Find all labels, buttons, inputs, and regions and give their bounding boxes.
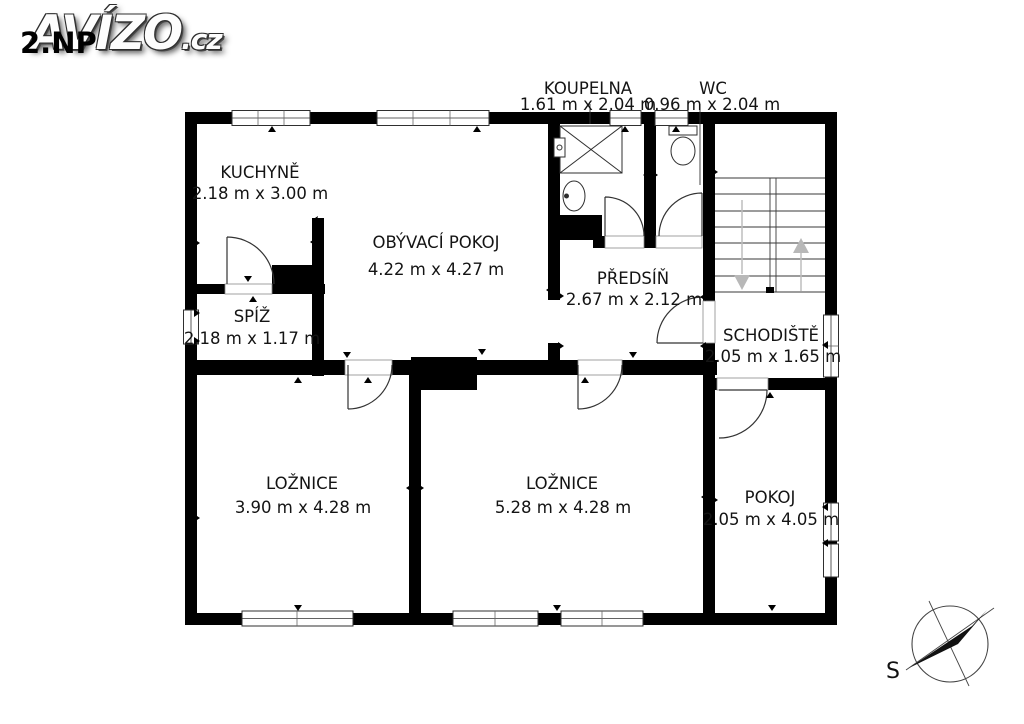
room-label-pokoj: POKOJ 2.05 m x 4.05 m bbox=[703, 488, 839, 529]
bedroom2-window-right bbox=[561, 611, 643, 626]
room-label-predsin: PŘEDSÍŇ 2.67 m x 2.12 m bbox=[566, 269, 702, 309]
room-dims: 2.05 m x 4.05 m bbox=[703, 510, 839, 529]
room-label-obyvaci-pokoj: OBÝVACÍ POKOJ 4.22 m x 4.27 m bbox=[368, 233, 504, 279]
room-name: POKOJ bbox=[745, 488, 796, 507]
fixtures bbox=[554, 126, 697, 211]
stairs-up-arrow bbox=[793, 238, 809, 253]
room-dims: 5.28 m x 4.28 m bbox=[495, 498, 631, 517]
floor-label: 2.NP bbox=[20, 26, 97, 60]
bedroom1-window bbox=[242, 611, 353, 626]
bathroom-wc-wall bbox=[644, 124, 656, 248]
room-dims: 2.67 m x 2.12 m bbox=[566, 290, 702, 309]
room-name: PŘEDSÍŇ bbox=[597, 269, 669, 288]
shower-icon bbox=[554, 126, 622, 173]
staircase bbox=[715, 178, 825, 293]
room-label-loznice-1: LOŽNICE 3.90 m x 4.28 m bbox=[235, 474, 371, 517]
bathroom-door bbox=[605, 197, 644, 236]
bedroom-divider-wall bbox=[409, 360, 421, 625]
room-label-loznice-2: LOŽNICE 5.28 m x 4.28 m bbox=[495, 474, 631, 517]
room-dims: 1.61 m x 2.04 m bbox=[520, 95, 656, 114]
room-dims: 0.96 m x 2.04 m bbox=[644, 95, 780, 114]
room-label-koupelna: KOUPELNA 1.61 m x 2.04 m bbox=[520, 79, 656, 114]
living-room-window bbox=[377, 111, 489, 126]
room-dims: 4.22 m x 4.27 m bbox=[368, 260, 504, 279]
room-name: KUCHYNĚ bbox=[220, 163, 299, 182]
floor-plan-drawing: KUCHYNĚ 2.18 m x 3.00 m OBÝVACÍ POKOJ 4.… bbox=[0, 0, 1024, 724]
room-name: SPÍŽ bbox=[234, 307, 271, 326]
room-name: LOŽNICE bbox=[266, 474, 338, 493]
room-name: LOŽNICE bbox=[526, 474, 598, 493]
room-label-kuchyne: KUCHYNĚ 2.18 m x 3.00 m bbox=[192, 163, 328, 203]
wc-door bbox=[659, 193, 702, 236]
brand-tld: .cz bbox=[181, 23, 222, 56]
bedroom-pokoj-wall bbox=[703, 360, 715, 625]
room-dims: 3.90 m x 4.28 m bbox=[235, 498, 371, 517]
room-label-spiz: SPÍŽ 2.18 m x 1.17 m bbox=[184, 307, 320, 348]
sink-icon bbox=[563, 181, 585, 211]
bedroom2-window-left bbox=[453, 611, 538, 626]
pokoj-door bbox=[719, 390, 767, 438]
doors bbox=[227, 193, 767, 438]
compass-icon: S bbox=[886, 601, 994, 686]
room-name: OBÝVACÍ POKOJ bbox=[372, 233, 499, 252]
room-labels: KUCHYNĚ 2.18 m x 3.00 m OBÝVACÍ POKOJ 4.… bbox=[184, 79, 841, 529]
room-name: SCHODIŠTĚ bbox=[723, 326, 819, 345]
kitchen-window bbox=[232, 111, 310, 126]
compass-north-label: S bbox=[886, 659, 900, 684]
floor-plan-page: KUCHYNĚ 2.18 m x 3.00 m OBÝVACÍ POKOJ 4.… bbox=[0, 0, 1024, 724]
room-dims: 2.18 m x 3.00 m bbox=[192, 184, 328, 203]
room-label-wc: WC 0.96 m x 2.04 m bbox=[644, 79, 780, 114]
room-dims: 2.05 m x 1.65 m bbox=[705, 347, 841, 366]
room-label-schodiste: SCHODIŠTĚ 2.05 m x 1.65 m bbox=[705, 326, 841, 366]
room-dims: 2.18 m x 1.17 m bbox=[184, 329, 320, 348]
logo: AVÍZO.cz 2.NP bbox=[16, 4, 296, 68]
living-hall-passage bbox=[548, 300, 560, 343]
stairs-down-arrow bbox=[734, 275, 750, 290]
pokoj-window-lower bbox=[824, 544, 839, 577]
